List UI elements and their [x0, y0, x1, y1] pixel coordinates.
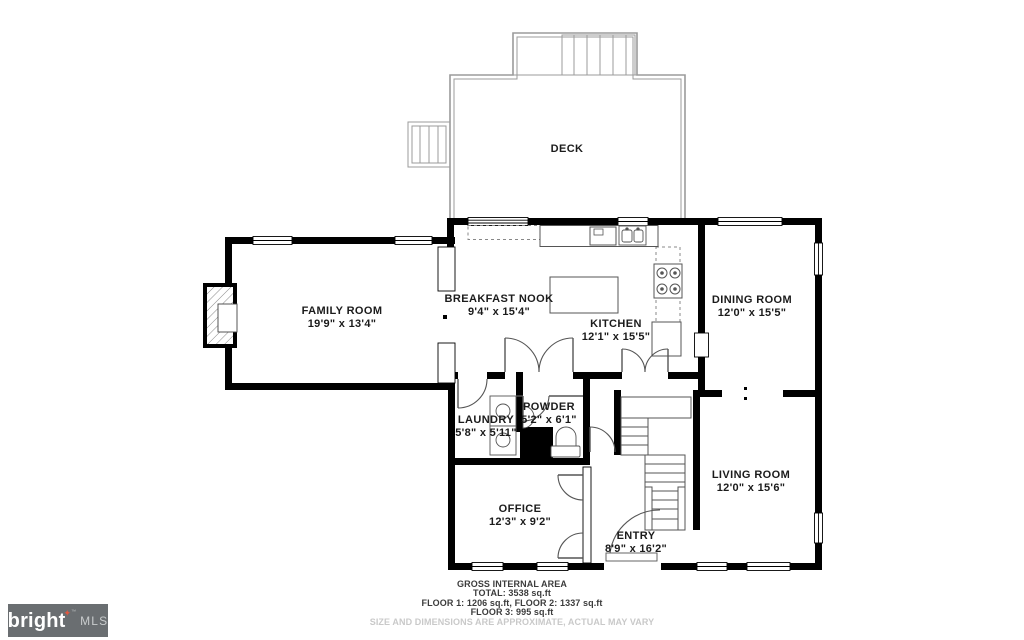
room-label-deck: DECK [457, 143, 677, 156]
star-icon: ✦ [64, 608, 72, 619]
floor-plan: DECK FAMILY ROOM 19'9" x 13'4" BREAKFAST… [0, 0, 1024, 640]
room-dims: 12'3" x 9'2" [410, 516, 630, 529]
room-dims: 19'9" x 13'4" [232, 318, 452, 331]
room-label-breakfast-nook: BREAKFAST NOOK 9'4" x 15'4" [389, 293, 609, 319]
deck-outline [450, 33, 685, 218]
deck-stairs-top [562, 35, 635, 75]
room-name: BREAKFAST NOOK [389, 293, 609, 306]
room-name: LIVING ROOM [641, 469, 861, 482]
room-name: POWDER [439, 401, 659, 414]
room-label-powder: POWDER 5'2" x 6'1" [439, 401, 659, 427]
room-dims: 12'0" x 15'5" [642, 307, 862, 320]
room-dims: 12'1" x 15'5" [506, 331, 726, 344]
room-dims: 8'9" x 16'2" [526, 543, 746, 556]
room-name: ENTRY [526, 530, 746, 543]
logo-suffix-text: MLS [80, 614, 108, 628]
room-dims: 5'2" x 6'1" [439, 414, 659, 427]
bright-mls-logo: bright ✦ ™ MLS [8, 604, 108, 637]
room-name: OFFICE [410, 503, 630, 516]
stove [654, 264, 682, 298]
disclaimer-text: SIZE AND DIMENSIONS ARE APPROXIMATE, ACT… [262, 618, 762, 627]
room-label-dining-room: DINING ROOM 12'0" x 15'5" [642, 294, 862, 320]
room-label-living-room: LIVING ROOM 12'0" x 15'6" [641, 469, 861, 495]
room-dims: 5'8" x 5'11" [376, 427, 596, 440]
room-name: DINING ROOM [642, 294, 862, 307]
room-name: DECK [457, 143, 677, 156]
room-label-entry: ENTRY 8'9" x 16'2" [526, 530, 746, 556]
area-summary: GROSS INTERNAL AREA TOTAL: 3538 sq.ft FL… [262, 580, 762, 627]
trademark-symbol: ™ [71, 609, 76, 615]
deck-stairs-left [408, 122, 450, 167]
kitchen-sink [619, 226, 646, 245]
room-label-kitchen: KITCHEN 12'1" x 15'5" [506, 318, 726, 344]
logo-brand-text: bright [8, 611, 66, 631]
room-dims: 12'0" x 15'6" [641, 482, 861, 495]
room-label-office: OFFICE 12'3" x 9'2" [410, 503, 630, 529]
